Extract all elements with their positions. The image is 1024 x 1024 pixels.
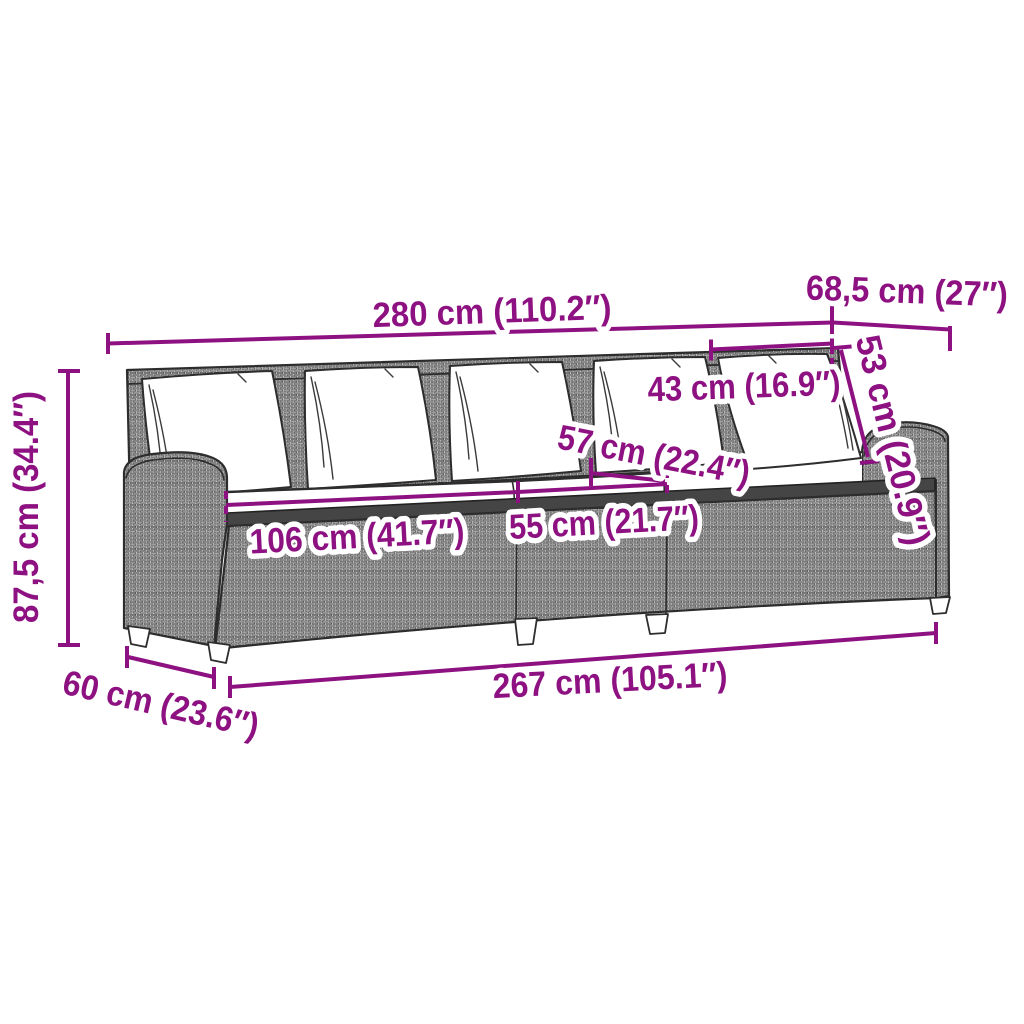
svg-text:43 cm (16.9″): 43 cm (16.9″) <box>647 364 841 410</box>
svg-text:68,5 cm (27″): 68,5 cm (27″) <box>805 268 1008 314</box>
svg-text:87,5 cm (34.4″): 87,5 cm (34.4″) <box>7 391 46 623</box>
svg-text:280 cm (110.2″): 280 cm (110.2″) <box>372 288 612 335</box>
